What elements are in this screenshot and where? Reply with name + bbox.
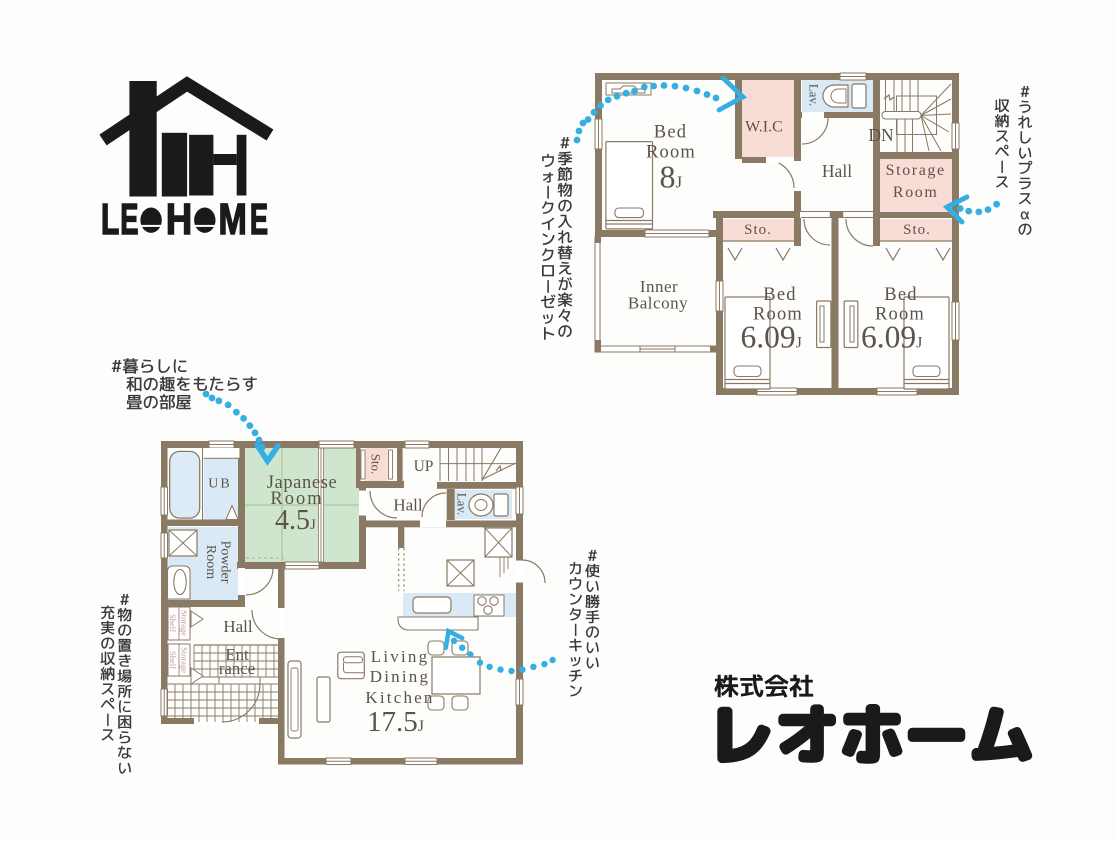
svg-text:Hall: Hall [223,617,253,636]
svg-text:E: E [120,195,138,244]
svg-text:Hall: Hall [822,161,852,181]
svg-text:UB: UB [208,477,231,492]
svg-text:DN: DN [868,125,894,145]
svg-text:L: L [101,195,119,244]
svg-text:rance: rance [219,659,255,678]
svg-text:Sto.: Sto. [369,454,384,475]
svg-text:Hall: Hall [393,496,423,515]
svg-text:Room: Room [875,305,925,325]
svg-text:Living: Living [371,647,430,666]
svg-text:W.I.C: W.I.C [745,119,783,136]
svg-text:Balcony: Balcony [628,294,688,313]
svg-text:E: E [250,195,268,244]
svg-text:6.09J: 6.09J [861,320,922,355]
svg-text:M: M [219,195,247,244]
svg-text:Kitchen: Kitchen [365,688,434,707]
svg-text:Room: Room [203,545,218,579]
svg-text:Bed: Bed [763,285,796,305]
svg-text:Lav.: Lav. [455,493,470,516]
svg-text:Bed: Bed [884,285,917,305]
svg-text:Lav.: Lav. [807,84,822,107]
svg-text:Sto.: Sto. [744,222,772,238]
svg-text:Storage: Storage [886,162,946,179]
svg-text:Room: Room [893,184,939,201]
svg-text:6.09J: 6.09J [741,320,802,355]
svg-text:Storage: Storage [180,610,190,636]
svg-text:Sto.: Sto. [903,222,931,238]
svg-text:4.5J: 4.5J [275,505,316,536]
svg-text:H: H [166,195,192,244]
svg-text:Bed: Bed [654,123,687,143]
svg-text:Shelf: Shelf [168,651,178,669]
svg-text:17.5J: 17.5J [367,706,424,738]
svg-text:Storage: Storage [180,647,190,673]
svg-text:Shelf: Shelf [168,614,178,632]
svg-text:Dining: Dining [370,667,430,686]
svg-text:UP: UP [414,458,434,475]
svg-text:Powder: Powder [218,541,233,584]
